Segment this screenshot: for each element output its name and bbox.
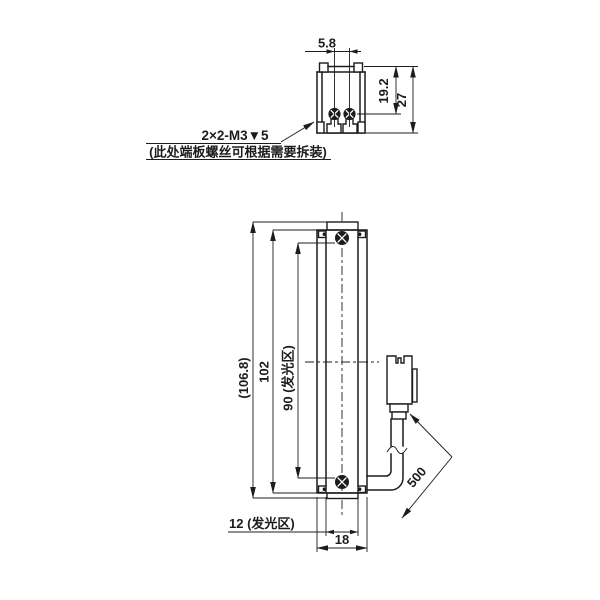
connector-step [390, 404, 408, 412]
connector-body [387, 356, 412, 404]
dim-body-length-label: 102 [257, 361, 272, 383]
dim-top-to-screw-label: 19.2 [376, 78, 391, 103]
connector-tail [392, 412, 406, 419]
connector [387, 356, 417, 419]
connector-latch [413, 369, 418, 402]
front-screw-bottom [336, 476, 349, 489]
profile-tslot-left [327, 118, 341, 133]
note-line2: (此处端板螺丝可根据需要拆装) [149, 145, 327, 160]
screw-note: 2×2-M3▼5 (此处端板螺丝可根据需要拆装) [146, 122, 331, 160]
front-view [305, 212, 379, 515]
dim-width-label: 18 [335, 532, 349, 547]
profile-lid-lip-left [320, 63, 329, 72]
top-view-section [317, 63, 365, 133]
profile-corner-foot-right [358, 122, 365, 133]
drawing-canvas: 5.8 19.2 27 2×2-M3▼5 (此处端板螺丝可根据需要拆装) [0, 0, 600, 600]
bottom-end-cap [327, 493, 358, 499]
dim-height-label: 27 [394, 93, 409, 107]
dim-luminous-width-label: 12 (发光区) [229, 516, 295, 531]
top-end-cap [327, 222, 358, 230]
profile-tslot-right [343, 118, 357, 133]
cable-inner-line [367, 419, 391, 476]
note-line1: 2×2-M3▼5 [201, 128, 269, 143]
profile-corner-foot-left [317, 122, 324, 133]
technical-drawing-page: 5.8 19.2 27 2×2-M3▼5 (此处端板螺丝可根据需要拆装) [0, 0, 600, 600]
dim-overall-length-label: (106.8) [236, 357, 251, 398]
dim-luminous-length-label: 90 (发光区) [281, 345, 296, 411]
cable [367, 419, 407, 490]
dim-screw-spacing-label: 5.8 [318, 36, 336, 51]
cable-outer-line [367, 419, 403, 490]
cable-break-symbol [387, 446, 407, 453]
front-view-dimensions: (106.8) 102 90 (发光区) 12 (发光区) 18 500 [228, 222, 452, 552]
dim-cable-length-label: 500 [404, 464, 429, 490]
front-screw-top [336, 232, 349, 245]
profile-lid-lip-right [354, 63, 363, 72]
